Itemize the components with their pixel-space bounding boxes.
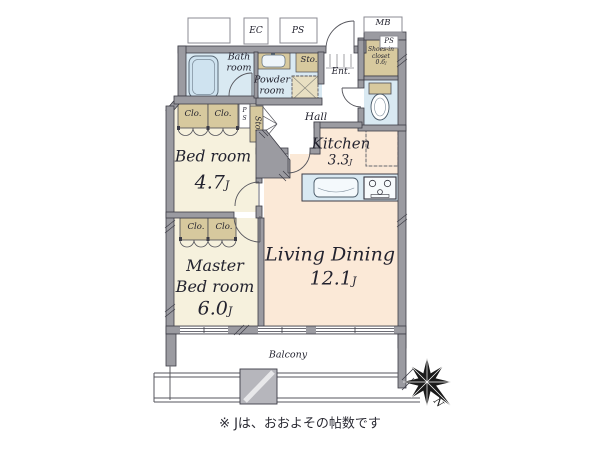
living-dining-name: Living Dining (265, 244, 395, 265)
balcony-pillar (166, 334, 176, 366)
floor-plan-drawing (0, 0, 600, 450)
balcony (154, 334, 420, 404)
windows (180, 327, 394, 334)
balcony-railing (154, 373, 420, 402)
kitchen-name: Kitchen (312, 136, 371, 153)
ps-right-label: PS (384, 38, 394, 46)
entrance-door (326, 21, 354, 49)
kitchen-sink (314, 178, 358, 197)
bedroom-size: 4.7J (195, 172, 230, 193)
external-box (188, 18, 230, 43)
toilet-door (342, 88, 361, 107)
washbasin-sink (262, 55, 285, 67)
hall-label: Hall (305, 112, 327, 124)
closet-label: Clo. (188, 223, 205, 233)
window (258, 327, 306, 334)
compass-rose (403, 358, 451, 406)
footnote: ※ Jは、おおよその帖数です (219, 413, 381, 432)
master-bedroom-name: Master Bed room (176, 256, 255, 298)
powder-room-label: Powder room (254, 75, 290, 96)
kitchen-stove (364, 177, 396, 199)
toilet-tank (369, 83, 391, 94)
pipe-space-label: P S (242, 107, 246, 123)
kitchen-size: 3.3J (328, 153, 353, 168)
ps-top-label: PS (292, 26, 304, 36)
shoes-closet-label: Shoes-in closet 0.6J (368, 47, 394, 67)
angled-wall-block (256, 130, 290, 178)
closet-label: Clo. (216, 223, 233, 233)
storage-door (263, 107, 277, 124)
master-bedroom-size: 6.0J (198, 298, 233, 319)
hall-storage-label: Sto. (252, 116, 261, 132)
mb-label: MB (376, 19, 391, 29)
window (180, 327, 228, 334)
closet-label: Clo. (185, 110, 202, 120)
floor-plan: EC PS MB PS Bath room Powder room Sto. E… (0, 0, 600, 450)
entrance-steps (326, 54, 354, 68)
storage-top-label: Sto. (301, 56, 318, 66)
refrigerator-space (366, 129, 398, 166)
window (316, 327, 394, 334)
ec-label: EC (249, 26, 262, 36)
living-dining-size: 12.1J (310, 268, 357, 289)
closet-label: Clo. (215, 110, 232, 120)
entrance-label: Ent. (332, 67, 351, 77)
bedroom-name: Bed room (175, 148, 251, 165)
bath-room-label: Bath room (227, 52, 252, 73)
balcony-label: Balcony (269, 351, 307, 362)
